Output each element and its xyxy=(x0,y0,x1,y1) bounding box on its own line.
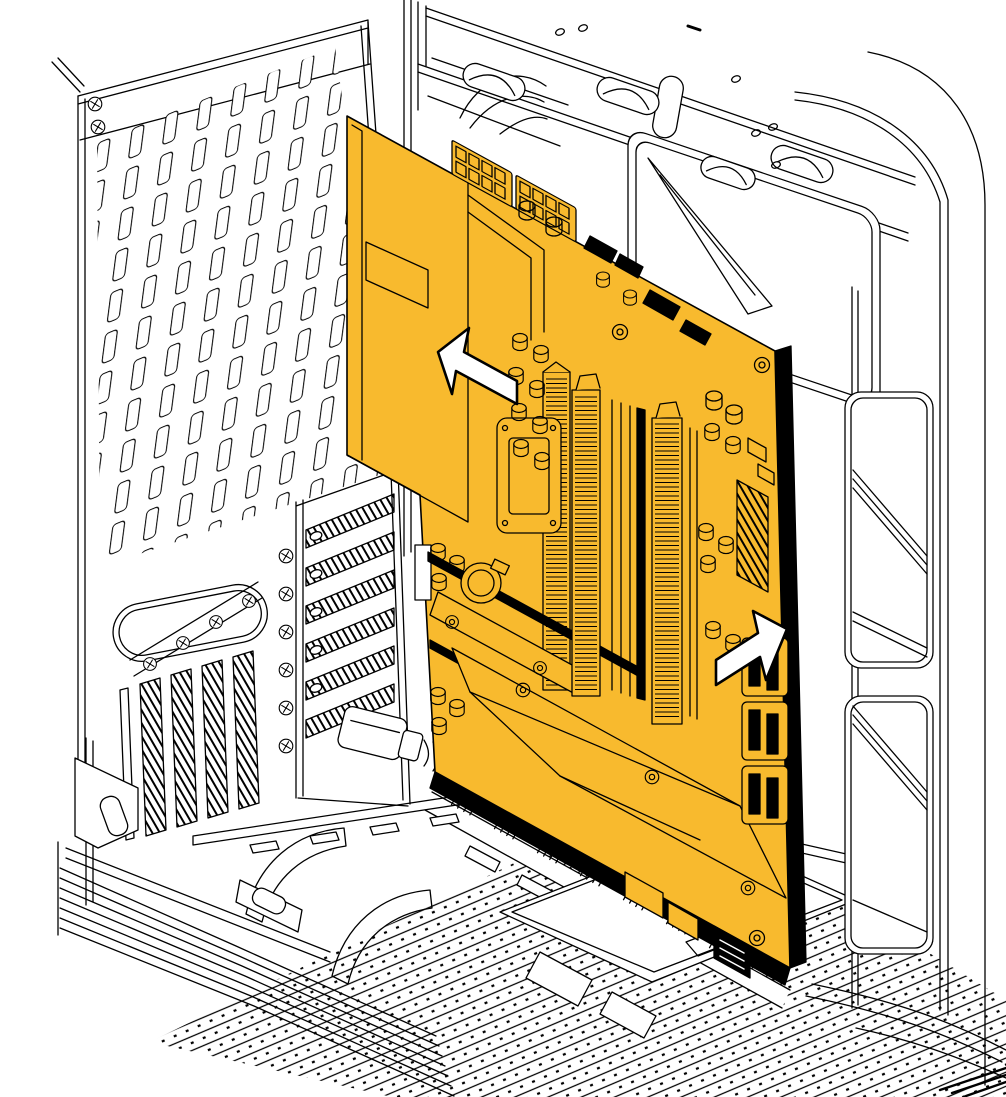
atx-24pin-connector xyxy=(737,480,768,592)
panel-screw xyxy=(91,120,105,134)
pillar-rib-panel xyxy=(845,696,933,954)
cpu-socket xyxy=(497,418,561,533)
assembly-diagram xyxy=(0,0,1006,1097)
illustration-canvas xyxy=(0,0,1006,1097)
panel-screw xyxy=(88,97,102,111)
pillar-rib-panel xyxy=(845,392,933,668)
